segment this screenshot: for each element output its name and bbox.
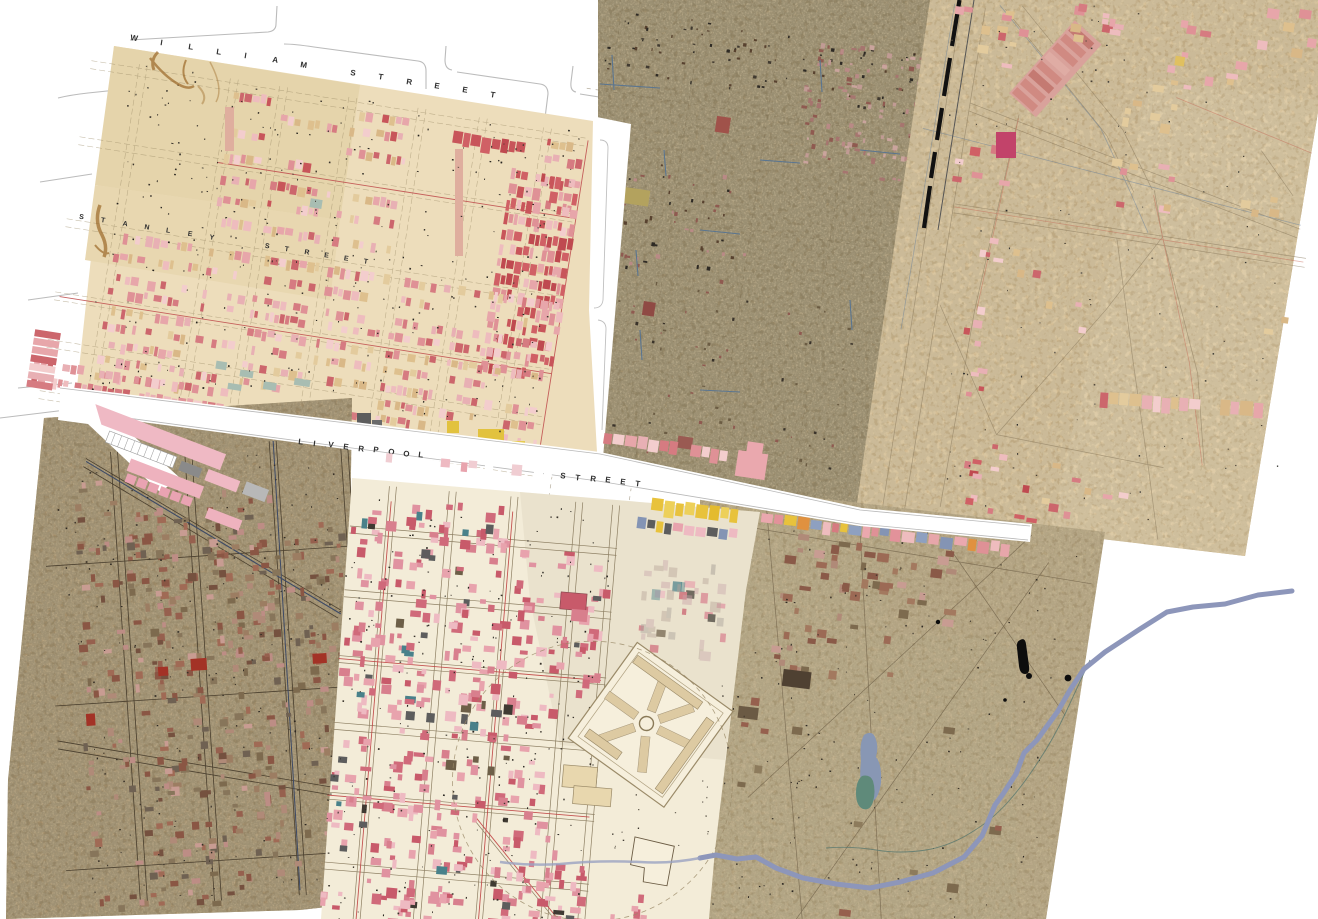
svg-text:A: A [122, 221, 128, 229]
svg-text:R: R [304, 249, 310, 257]
svg-text:N: N [144, 224, 150, 232]
